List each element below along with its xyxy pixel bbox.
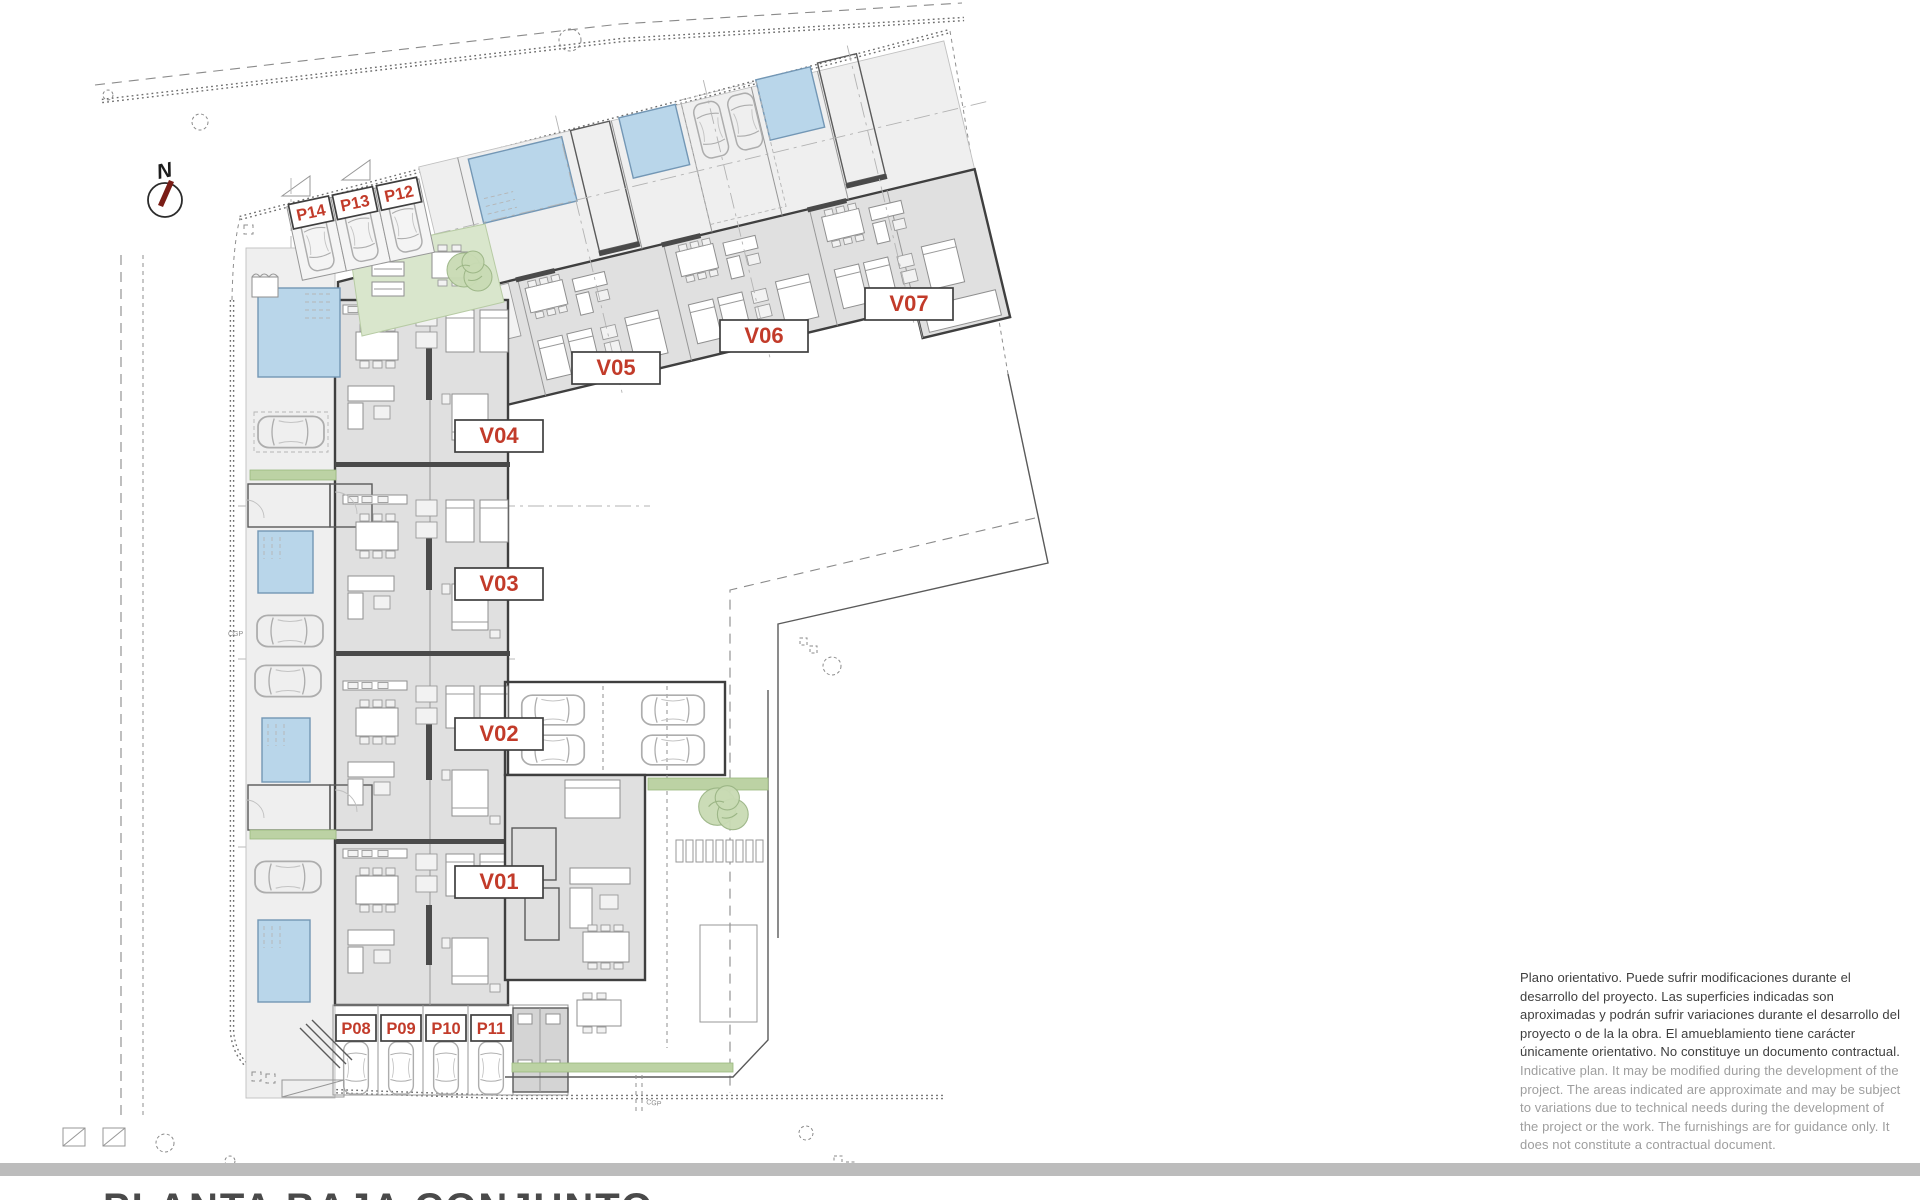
sheet-title: PLANTA BAJA CONJUNTO [103, 1186, 654, 1200]
car-icon [389, 1042, 414, 1094]
pergola-slats [676, 840, 763, 862]
floor-plan-sheet: P14 P13 P12 P08 P09 P10 P11 [0, 0, 1920, 1200]
utility-label-cgp: CGP [646, 1099, 662, 1108]
svg-text:V05: V05 [596, 355, 635, 380]
disclaimer-en: Indicative plan. It may be modified duri… [1520, 1062, 1904, 1155]
svg-text:V06: V06 [744, 323, 783, 348]
svg-text:V02: V02 [479, 721, 518, 746]
tree-icon [699, 786, 749, 830]
utility-label-cgp: CGP [228, 631, 244, 638]
compass-label: N [155, 158, 175, 184]
car-icon [479, 1042, 504, 1094]
pool-v02 [262, 718, 310, 782]
svg-text:V07: V07 [889, 291, 928, 316]
car-icon [344, 1042, 369, 1094]
disclaimer-es: Plano orientativo. Puede sufrir modifica… [1520, 969, 1904, 1062]
hedge [512, 1063, 733, 1072]
bottom-scrollbar[interactable] [0, 1163, 1920, 1176]
north-arrow: N [148, 158, 182, 217]
svg-text:P10: P10 [431, 1020, 460, 1038]
svg-text:P11: P11 [477, 1020, 505, 1038]
pool-v01 [258, 920, 310, 1002]
hedge [250, 830, 336, 839]
svg-text:V03: V03 [479, 571, 518, 596]
svg-text:P08: P08 [341, 1020, 370, 1038]
hedge [250, 470, 336, 480]
pool-v04 [258, 288, 340, 377]
car-icon [434, 1042, 459, 1094]
svg-text:V04: V04 [479, 423, 519, 448]
svg-text:P09: P09 [386, 1020, 415, 1038]
communal-block [505, 682, 768, 1112]
left-wing [246, 248, 510, 1098]
svg-text:V01: V01 [479, 869, 518, 894]
car-icon [522, 695, 704, 765]
pool-v03 [258, 531, 313, 593]
disclaimer: Plano orientativo. Puede sufrir modifica… [1520, 969, 1904, 1155]
